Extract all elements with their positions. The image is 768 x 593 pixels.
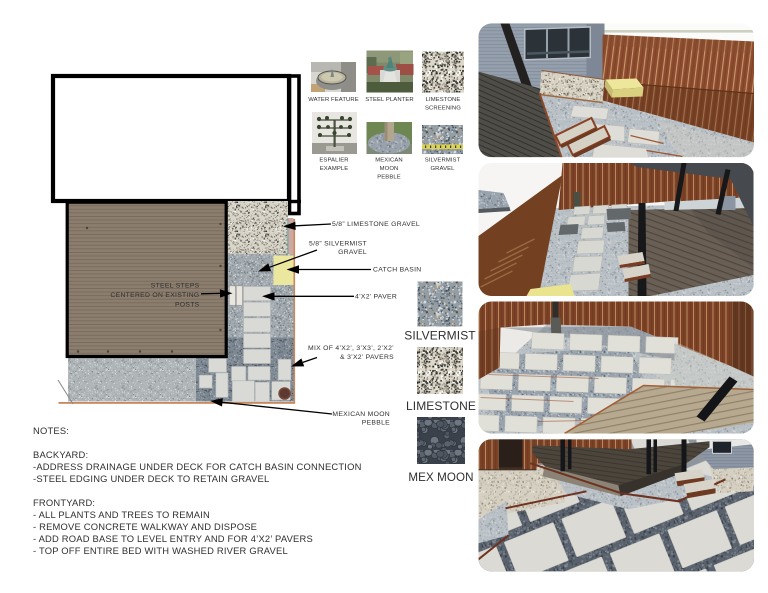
svg-text:STEEL STEPS: STEEL STEPS bbox=[151, 283, 200, 290]
svg-text:- ADD ROAD BASE TO LEVEL ENTRY: - ADD ROAD BASE TO LEVEL ENTRY AND FOR 4… bbox=[33, 533, 313, 544]
svg-text:MOON: MOON bbox=[380, 166, 399, 172]
svg-text:LIMESTONE: LIMESTONE bbox=[426, 97, 461, 103]
svg-text:ESPALIER: ESPALIER bbox=[319, 158, 348, 164]
svg-text:NOTES:: NOTES: bbox=[33, 425, 69, 436]
svg-text:CENTERED ON EXISTING: CENTERED ON EXISTING bbox=[110, 292, 199, 299]
svg-text:-STEEL EDGING UNDER DECK TO RE: -STEEL EDGING UNDER DECK TO RETAIN GRAVE… bbox=[33, 473, 269, 484]
svg-text:4’X2’ PAVER: 4’X2’ PAVER bbox=[355, 294, 397, 301]
svg-text:LIMESTONE: LIMESTONE bbox=[406, 399, 476, 413]
svg-text:SILVERMIST: SILVERMIST bbox=[404, 329, 476, 343]
svg-text:GRAVEL: GRAVEL bbox=[338, 249, 367, 256]
svg-text:PEBBLE: PEBBLE bbox=[377, 175, 401, 181]
svg-text:PEBBLE: PEBBLE bbox=[362, 420, 390, 427]
svg-text:EXAMPLE: EXAMPLE bbox=[320, 166, 349, 172]
svg-text:WATER FEATURE: WATER FEATURE bbox=[308, 97, 359, 103]
svg-text:& 3’X2’ PAVERS: & 3’X2’ PAVERS bbox=[340, 354, 394, 361]
svg-text:MEX MOON: MEX MOON bbox=[408, 471, 473, 484]
svg-text:CATCH BASIN: CATCH BASIN bbox=[373, 267, 422, 274]
svg-text:POSTS: POSTS bbox=[175, 302, 200, 309]
svg-text:GRAVEL: GRAVEL bbox=[430, 166, 455, 172]
svg-text:STEEL PLANTER: STEEL PLANTER bbox=[365, 97, 414, 103]
svg-text:-ADDRESS DRAINAGE UNDER DECK F: -ADDRESS DRAINAGE UNDER DECK FOR CATCH B… bbox=[33, 461, 362, 472]
svg-text:MEXICAN MOON: MEXICAN MOON bbox=[332, 411, 390, 418]
svg-text:SILVERMIST: SILVERMIST bbox=[425, 158, 461, 164]
svg-text:5/8” SILVERMIST: 5/8” SILVERMIST bbox=[309, 241, 367, 248]
svg-text:- ALL PLANTS AND TREES TO REMA: - ALL PLANTS AND TREES TO REMAIN bbox=[33, 509, 210, 520]
svg-text:MEXICAN: MEXICAN bbox=[375, 158, 403, 164]
svg-text:- REMOVE CONCRETE WALKWAY AND: - REMOVE CONCRETE WALKWAY AND DISPOSE bbox=[33, 521, 257, 532]
svg-text:MIX OF 4’X2’, 3’X3’, 2’X2’: MIX OF 4’X2’, 3’X3’, 2’X2’ bbox=[308, 345, 394, 352]
svg-text:5/8” LIMESTONE GRAVEL: 5/8” LIMESTONE GRAVEL bbox=[332, 221, 420, 228]
svg-text:FRONTYARD:: FRONTYARD: bbox=[33, 497, 95, 508]
svg-text:- TOP OFF ENTIRE BED WITH WASH: - TOP OFF ENTIRE BED WITH WASHED RIVER G… bbox=[33, 545, 288, 556]
svg-text:BACKYARD:: BACKYARD: bbox=[33, 449, 88, 460]
svg-text:SCREENING: SCREENING bbox=[425, 106, 461, 112]
